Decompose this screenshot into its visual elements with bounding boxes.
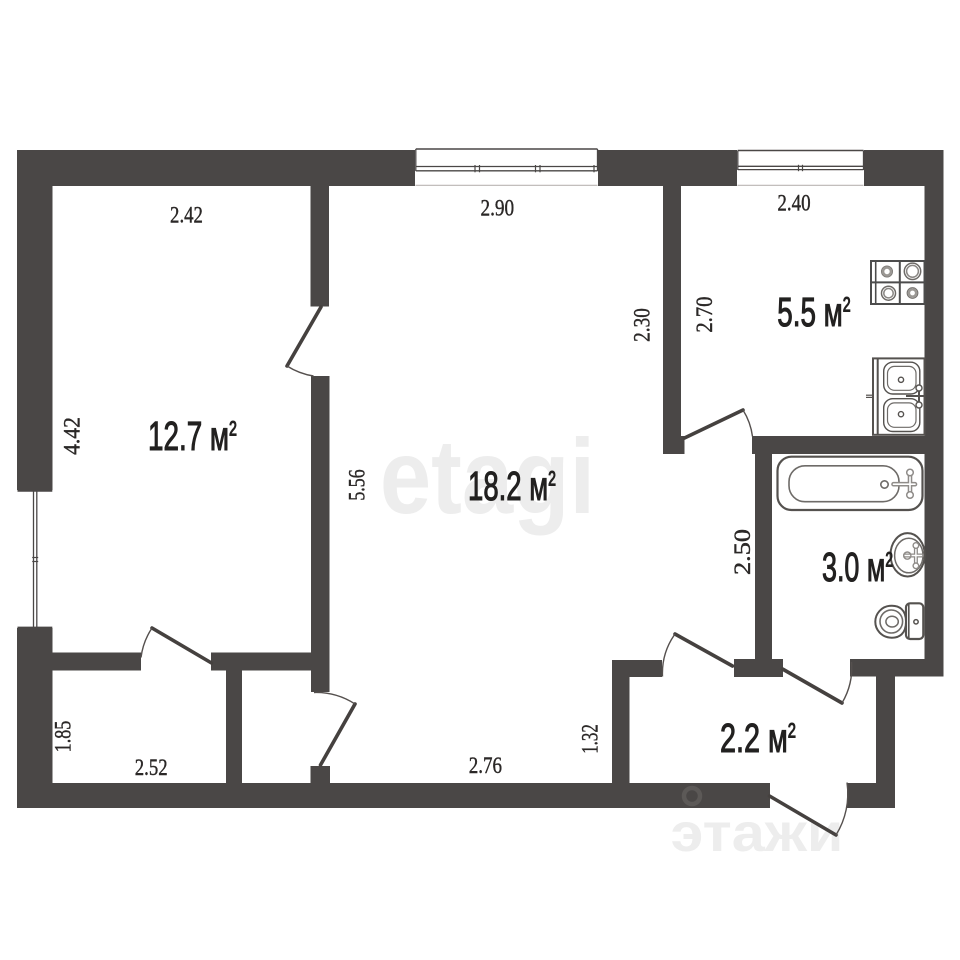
svg-text:4.42: 4.42 <box>59 417 85 455</box>
svg-text:5.56: 5.56 <box>343 469 370 500</box>
svg-text:этажи: этажи <box>671 803 844 863</box>
svg-text:12.7 м2: 12.7 м2 <box>148 414 237 460</box>
svg-text:2.76: 2.76 <box>469 752 503 778</box>
svg-text:2.90: 2.90 <box>480 195 514 221</box>
svg-text:2.50: 2.50 <box>730 529 755 575</box>
svg-text:2.70: 2.70 <box>691 297 718 333</box>
svg-text:2.42: 2.42 <box>170 202 203 229</box>
svg-text:1.32: 1.32 <box>578 724 603 754</box>
svg-text:1.85: 1.85 <box>49 721 76 753</box>
svg-text:18.2 м2: 18.2 м2 <box>468 464 556 510</box>
svg-text:2.30: 2.30 <box>629 308 655 342</box>
svg-text:5.5 м2: 5.5 м2 <box>777 290 850 336</box>
svg-text:2.52: 2.52 <box>135 754 168 781</box>
svg-text:3.0 м2: 3.0 м2 <box>822 546 893 591</box>
svg-text:2.2 м2: 2.2 м2 <box>720 715 796 761</box>
svg-text:2.40: 2.40 <box>777 190 810 216</box>
